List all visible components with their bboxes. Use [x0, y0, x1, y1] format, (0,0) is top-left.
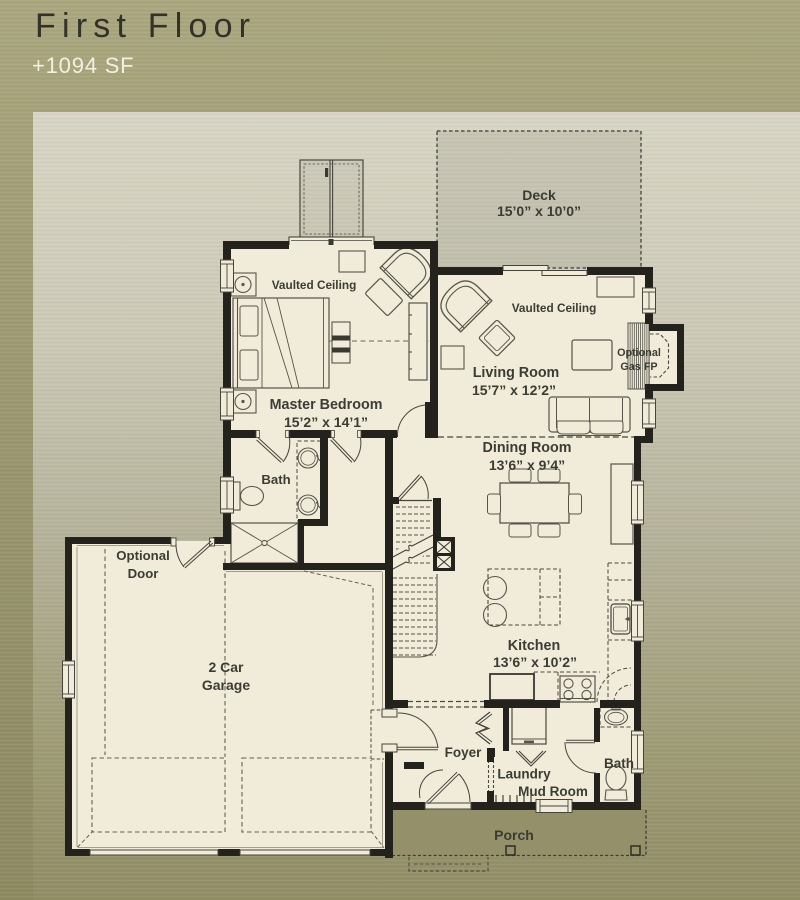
svg-text:Vaulted Ceiling: Vaulted Ceiling	[512, 301, 597, 315]
svg-text:13’6” x 9’4”: 13’6” x 9’4”	[489, 457, 565, 473]
svg-text:Garage: Garage	[202, 677, 250, 693]
svg-text:Vaulted Ceiling: Vaulted Ceiling	[272, 278, 357, 292]
svg-text:Living Room: Living Room	[473, 365, 560, 381]
svg-text:Bath: Bath	[604, 756, 634, 771]
svg-text:Deck: Deck	[522, 187, 556, 203]
svg-text:15’7” x 12’2”: 15’7” x 12’2”	[472, 382, 556, 398]
svg-text:Optional: Optional	[617, 347, 661, 359]
svg-text:Porch: Porch	[494, 827, 534, 843]
svg-text:Bath: Bath	[261, 472, 290, 487]
svg-text:Mud Room: Mud Room	[518, 784, 588, 799]
svg-text:13’6” x 10’2”: 13’6” x 10’2”	[493, 654, 577, 670]
svg-text:Dining Room: Dining Room	[483, 440, 572, 456]
svg-text:2 Car: 2 Car	[208, 659, 244, 675]
svg-text:Door: Door	[128, 566, 159, 581]
svg-text:First Floor: First Floor	[35, 7, 256, 45]
svg-text:+1094 SF: +1094 SF	[32, 53, 134, 78]
svg-text:Foyer: Foyer	[445, 745, 483, 760]
svg-text:15’2” x 14’1”: 15’2” x 14’1”	[284, 414, 368, 430]
svg-text:Optional: Optional	[116, 548, 169, 563]
svg-text:Master Bedroom: Master Bedroom	[270, 397, 383, 413]
svg-text:Kitchen: Kitchen	[508, 638, 560, 654]
svg-text:Gas FP: Gas FP	[620, 361, 657, 373]
svg-text:Laundry: Laundry	[497, 767, 551, 782]
svg-text:15’0” x 10’0”: 15’0” x 10’0”	[497, 203, 581, 219]
